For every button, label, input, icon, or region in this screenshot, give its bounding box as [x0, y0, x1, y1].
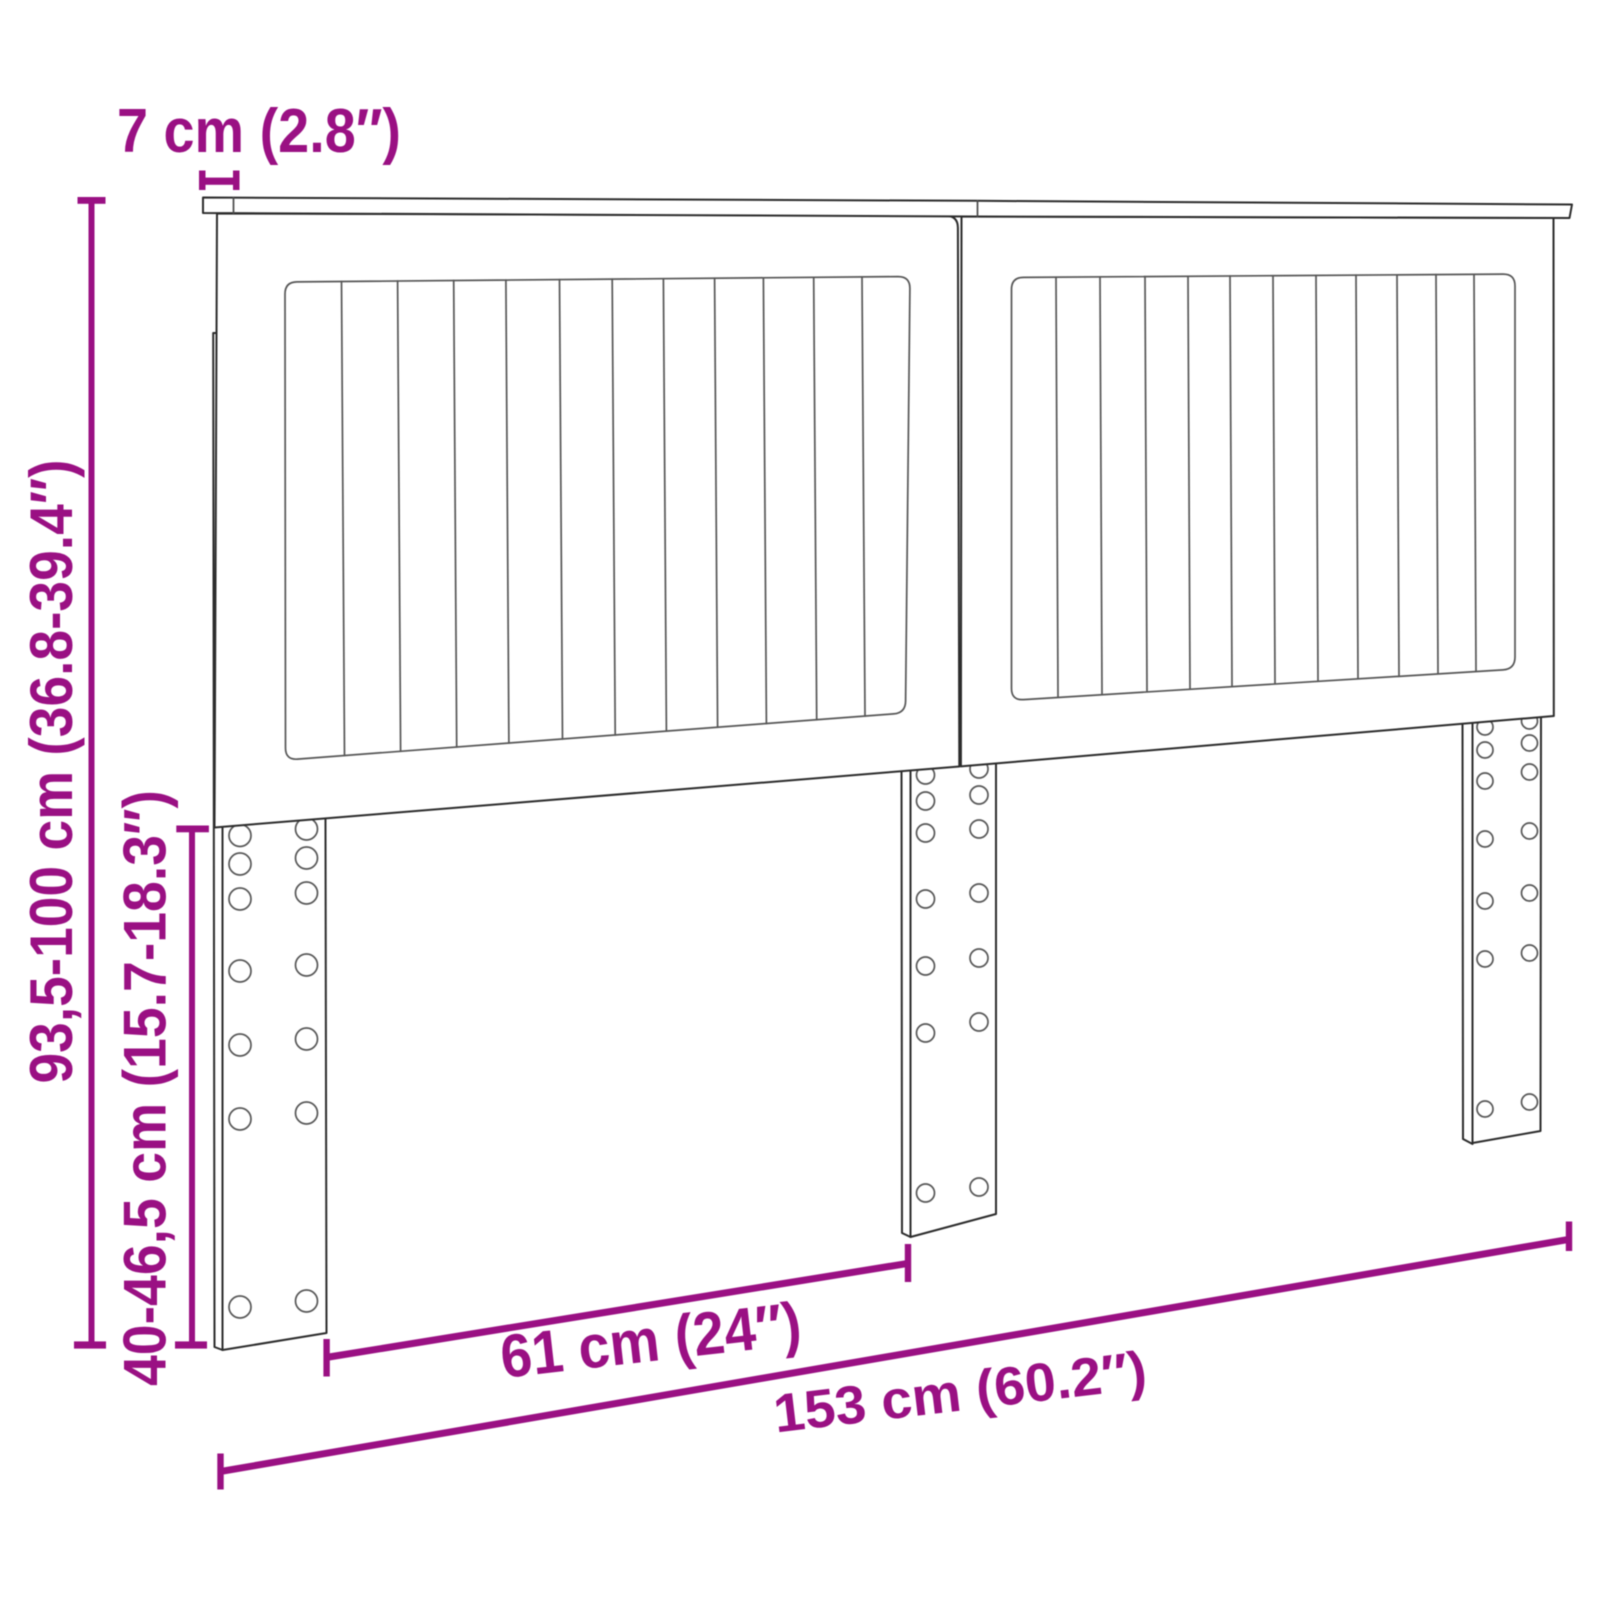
svg-text:93,5-100 cm (36.8-39.4″): 93,5-100 cm (36.8-39.4″) — [18, 460, 85, 1084]
svg-text:7 cm (2.8″): 7 cm (2.8″) — [117, 97, 401, 166]
svg-text:40-46,5 cm (15.7-18.3″): 40-46,5 cm (15.7-18.3″) — [112, 790, 179, 1386]
